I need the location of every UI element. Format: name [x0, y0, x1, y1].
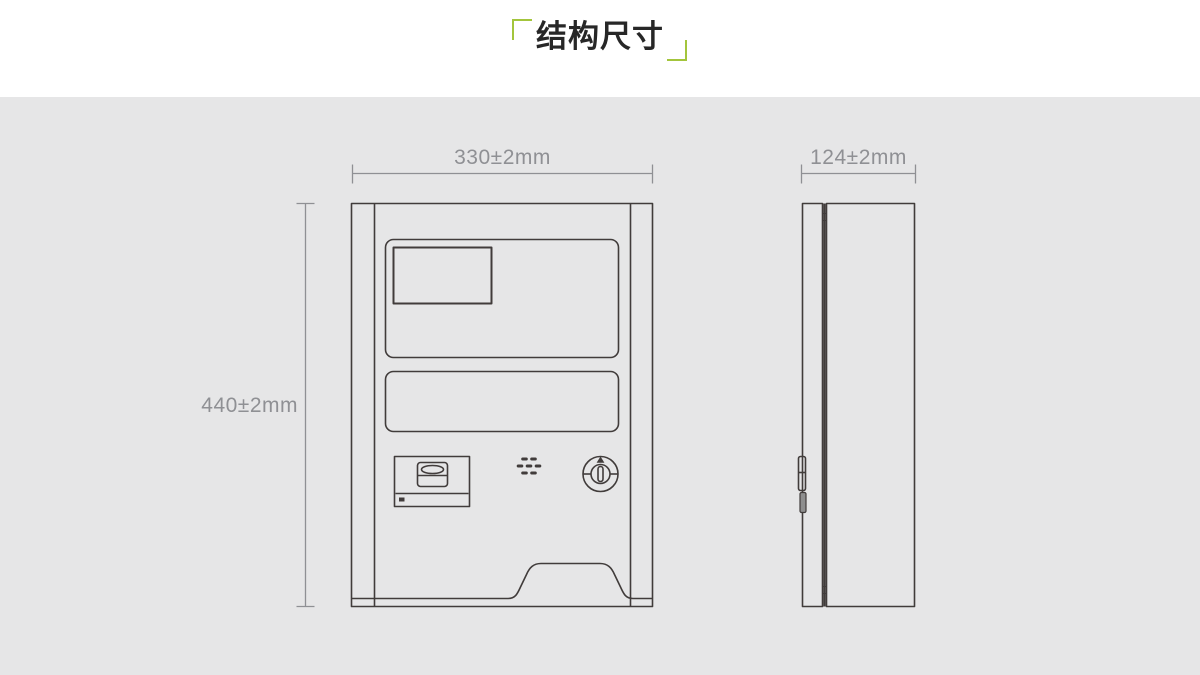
lower-panel	[386, 372, 619, 432]
page: 结构尺寸	[0, 0, 1200, 675]
display-panel	[386, 240, 619, 358]
technical-drawing	[0, 0, 1200, 675]
speaker-vents-icon	[517, 458, 542, 475]
dim-line-front-height	[297, 204, 315, 607]
side-front-panel	[803, 204, 823, 607]
front-width-dimension-label: 330±2mm	[352, 147, 653, 169]
side-view	[799, 204, 915, 607]
front-bottom-edge	[352, 564, 653, 599]
printer-module	[395, 457, 470, 507]
front-height-dimension-label: 440±2mm	[196, 395, 298, 417]
side-depth-dimension-label: 124±2mm	[801, 147, 916, 169]
front-view	[352, 204, 653, 607]
front-outline	[352, 204, 653, 607]
printer-outline	[395, 457, 470, 507]
display-screen	[394, 248, 492, 304]
side-body	[827, 204, 915, 607]
key-lock-icon	[583, 457, 618, 492]
printer-paper-slot	[422, 466, 444, 474]
side-latch-handle	[800, 493, 806, 513]
printer-led	[399, 498, 405, 502]
